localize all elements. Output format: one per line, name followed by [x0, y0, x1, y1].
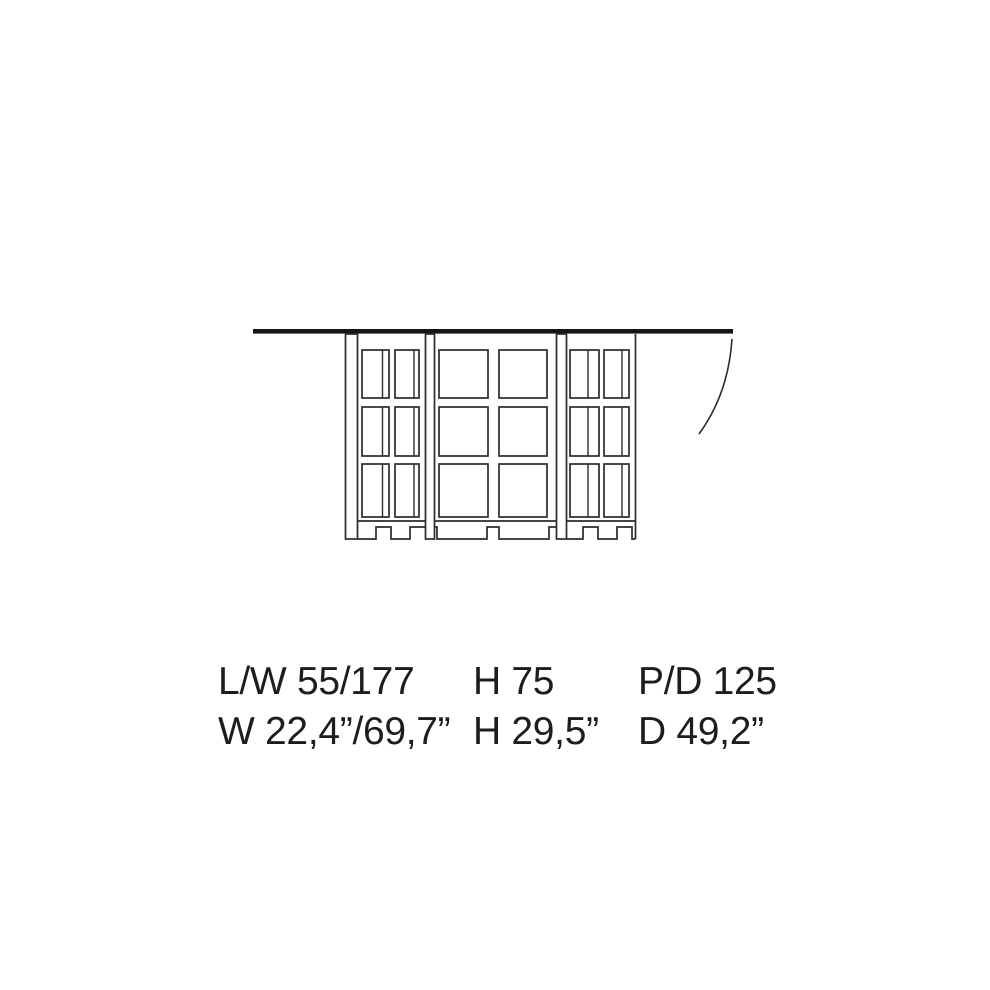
- dimension-width-imperial: W 22,4”/69,7”: [218, 710, 450, 755]
- dimension-depth-imperial: D 49,2”: [638, 710, 764, 755]
- lattice-base: [346, 334, 636, 539]
- tabletop-bar: [253, 329, 733, 334]
- leaf-swing-curve: [699, 339, 732, 434]
- dimension-length-width-metric: L/W 55/177: [218, 660, 414, 705]
- panel-center: [439, 350, 547, 517]
- dimension-depth-metric: P/D 125: [638, 660, 777, 705]
- spec-sheet: L/W 55/177 H 75 P/D 125 W 22,4”/69,7” H …: [0, 0, 990, 990]
- dimension-height-metric: H 75: [473, 660, 554, 705]
- table-elevation-drawing: [0, 0, 990, 620]
- post-center-right: [557, 334, 567, 539]
- base-feet-center: [435, 521, 557, 539]
- base-feet-left: [358, 521, 425, 539]
- dimension-height-imperial: H 29,5”: [473, 710, 599, 755]
- post-left: [346, 334, 358, 539]
- base-feet-right: [567, 521, 636, 539]
- panel-left: [362, 350, 419, 517]
- panel-right: [570, 350, 629, 517]
- post-center-left: [426, 334, 435, 539]
